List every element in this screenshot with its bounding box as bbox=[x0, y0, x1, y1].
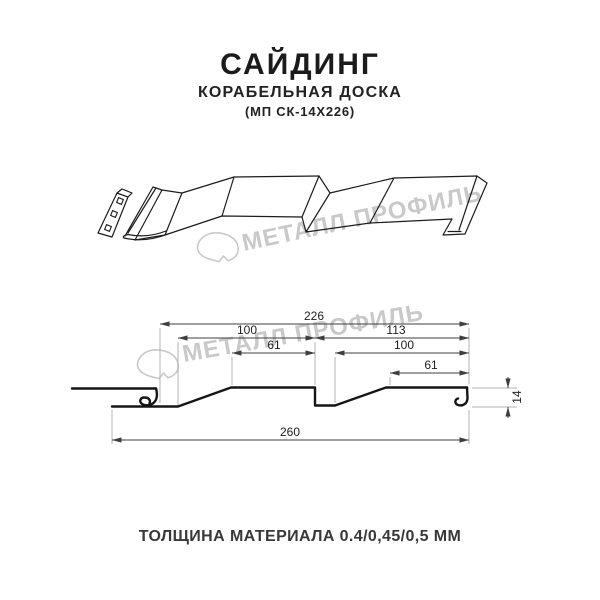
profile-3d-view: МЕТАЛЛ ПРОФИЛЬ bbox=[98, 176, 487, 262]
product-drawing-page: САЙДИНГ КОРАБЕЛЬНАЯ ДОСКА (МП СК-14Х226) bbox=[0, 0, 600, 600]
dim-right-module: 113 bbox=[386, 323, 405, 337]
dim-right-visible: 100 bbox=[394, 338, 414, 352]
watermark-lower: МЕТАЛЛ ПРОФИЛЬ bbox=[137, 299, 425, 379]
section-profile bbox=[72, 388, 468, 407]
dim-overall-width: 226 bbox=[304, 309, 324, 323]
dim-left-module: 100 bbox=[237, 323, 257, 337]
metal-profile-logo-icon bbox=[197, 233, 238, 262]
technical-drawing: МЕТАЛЛ ПРОФИЛЬ bbox=[0, 0, 600, 600]
extension-lines bbox=[112, 328, 517, 444]
fastener-hole bbox=[111, 211, 118, 218]
fastener-hole bbox=[105, 225, 112, 232]
cross-section-view: МЕТАЛЛ ПРОФИЛЬ bbox=[72, 299, 524, 444]
dim-total-width: 260 bbox=[280, 425, 300, 439]
dim-right-flat: 61 bbox=[424, 358, 438, 372]
dim-left-flat: 61 bbox=[267, 338, 281, 352]
fastener-hole bbox=[117, 198, 124, 205]
metal-profile-logo-icon bbox=[137, 350, 178, 379]
dim-profile-height: 14 bbox=[510, 390, 524, 404]
material-thickness-note: ТОЛЩИНА МАТЕРИАЛА 0.4/0,45/0,5 ММ bbox=[0, 528, 600, 546]
